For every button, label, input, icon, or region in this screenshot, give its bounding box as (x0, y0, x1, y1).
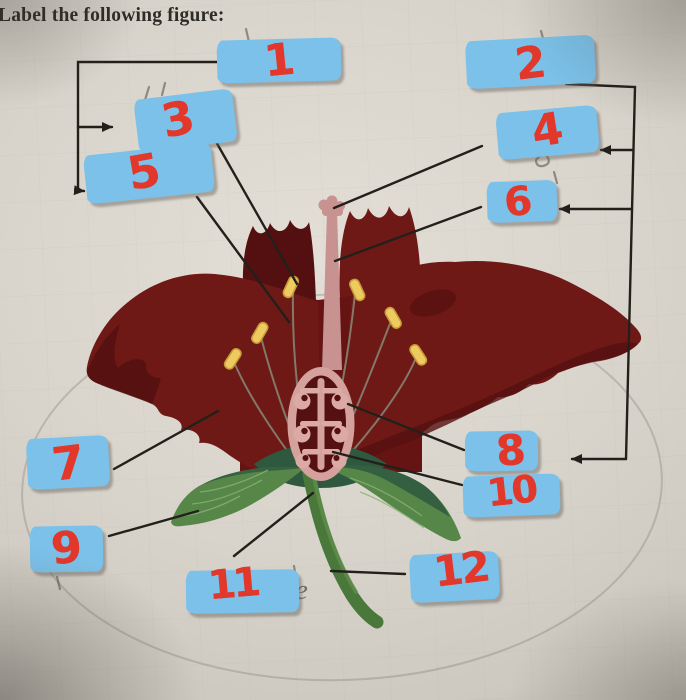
answer-sticker-4[interactable]: 4 (495, 105, 600, 161)
ovule (332, 426, 349, 443)
answer-sticker-2[interactable]: 2 (465, 35, 596, 90)
sticker-number-1: 1 (262, 37, 297, 84)
answer-sticker-6[interactable]: 6 (486, 180, 557, 223)
sticker-number-3: 3 (158, 93, 198, 144)
answer-sticker-10[interactable]: 10 (462, 473, 560, 517)
sticker-number-7: 7 (49, 438, 86, 488)
sticker-number-6: 6 (502, 180, 534, 223)
sticker-number-12: 12 (432, 545, 491, 593)
sticker-number-5: 5 (124, 146, 164, 197)
ovule (296, 454, 311, 469)
answer-sticker-7[interactable]: 7 (26, 435, 111, 490)
answer-sticker-8[interactable]: 8 (465, 430, 539, 471)
sticker-number-4: 4 (529, 106, 566, 154)
sticker-number-10: 10 (485, 469, 538, 512)
ovule (294, 393, 311, 410)
answer-sticker-1[interactable]: 1 (216, 37, 341, 83)
answer-sticker-9[interactable]: 9 (30, 525, 104, 572)
answer-sticker-12[interactable]: 12 (409, 551, 500, 604)
sticker-number-11: 11 (206, 562, 259, 606)
bracket-arrow-to-label-5 (78, 191, 84, 192)
sticker-number-9: 9 (49, 526, 83, 573)
worksheet-page: Label the following figure: e 1 2 3 4 5 … (0, 0, 686, 700)
ovule (294, 426, 311, 443)
ovule (332, 393, 349, 410)
sticker-number-8: 8 (494, 429, 527, 473)
page-title: Label the following figure: (0, 5, 225, 27)
sticker-number-2: 2 (513, 40, 549, 87)
answer-sticker-11[interactable]: 11 (186, 569, 300, 614)
